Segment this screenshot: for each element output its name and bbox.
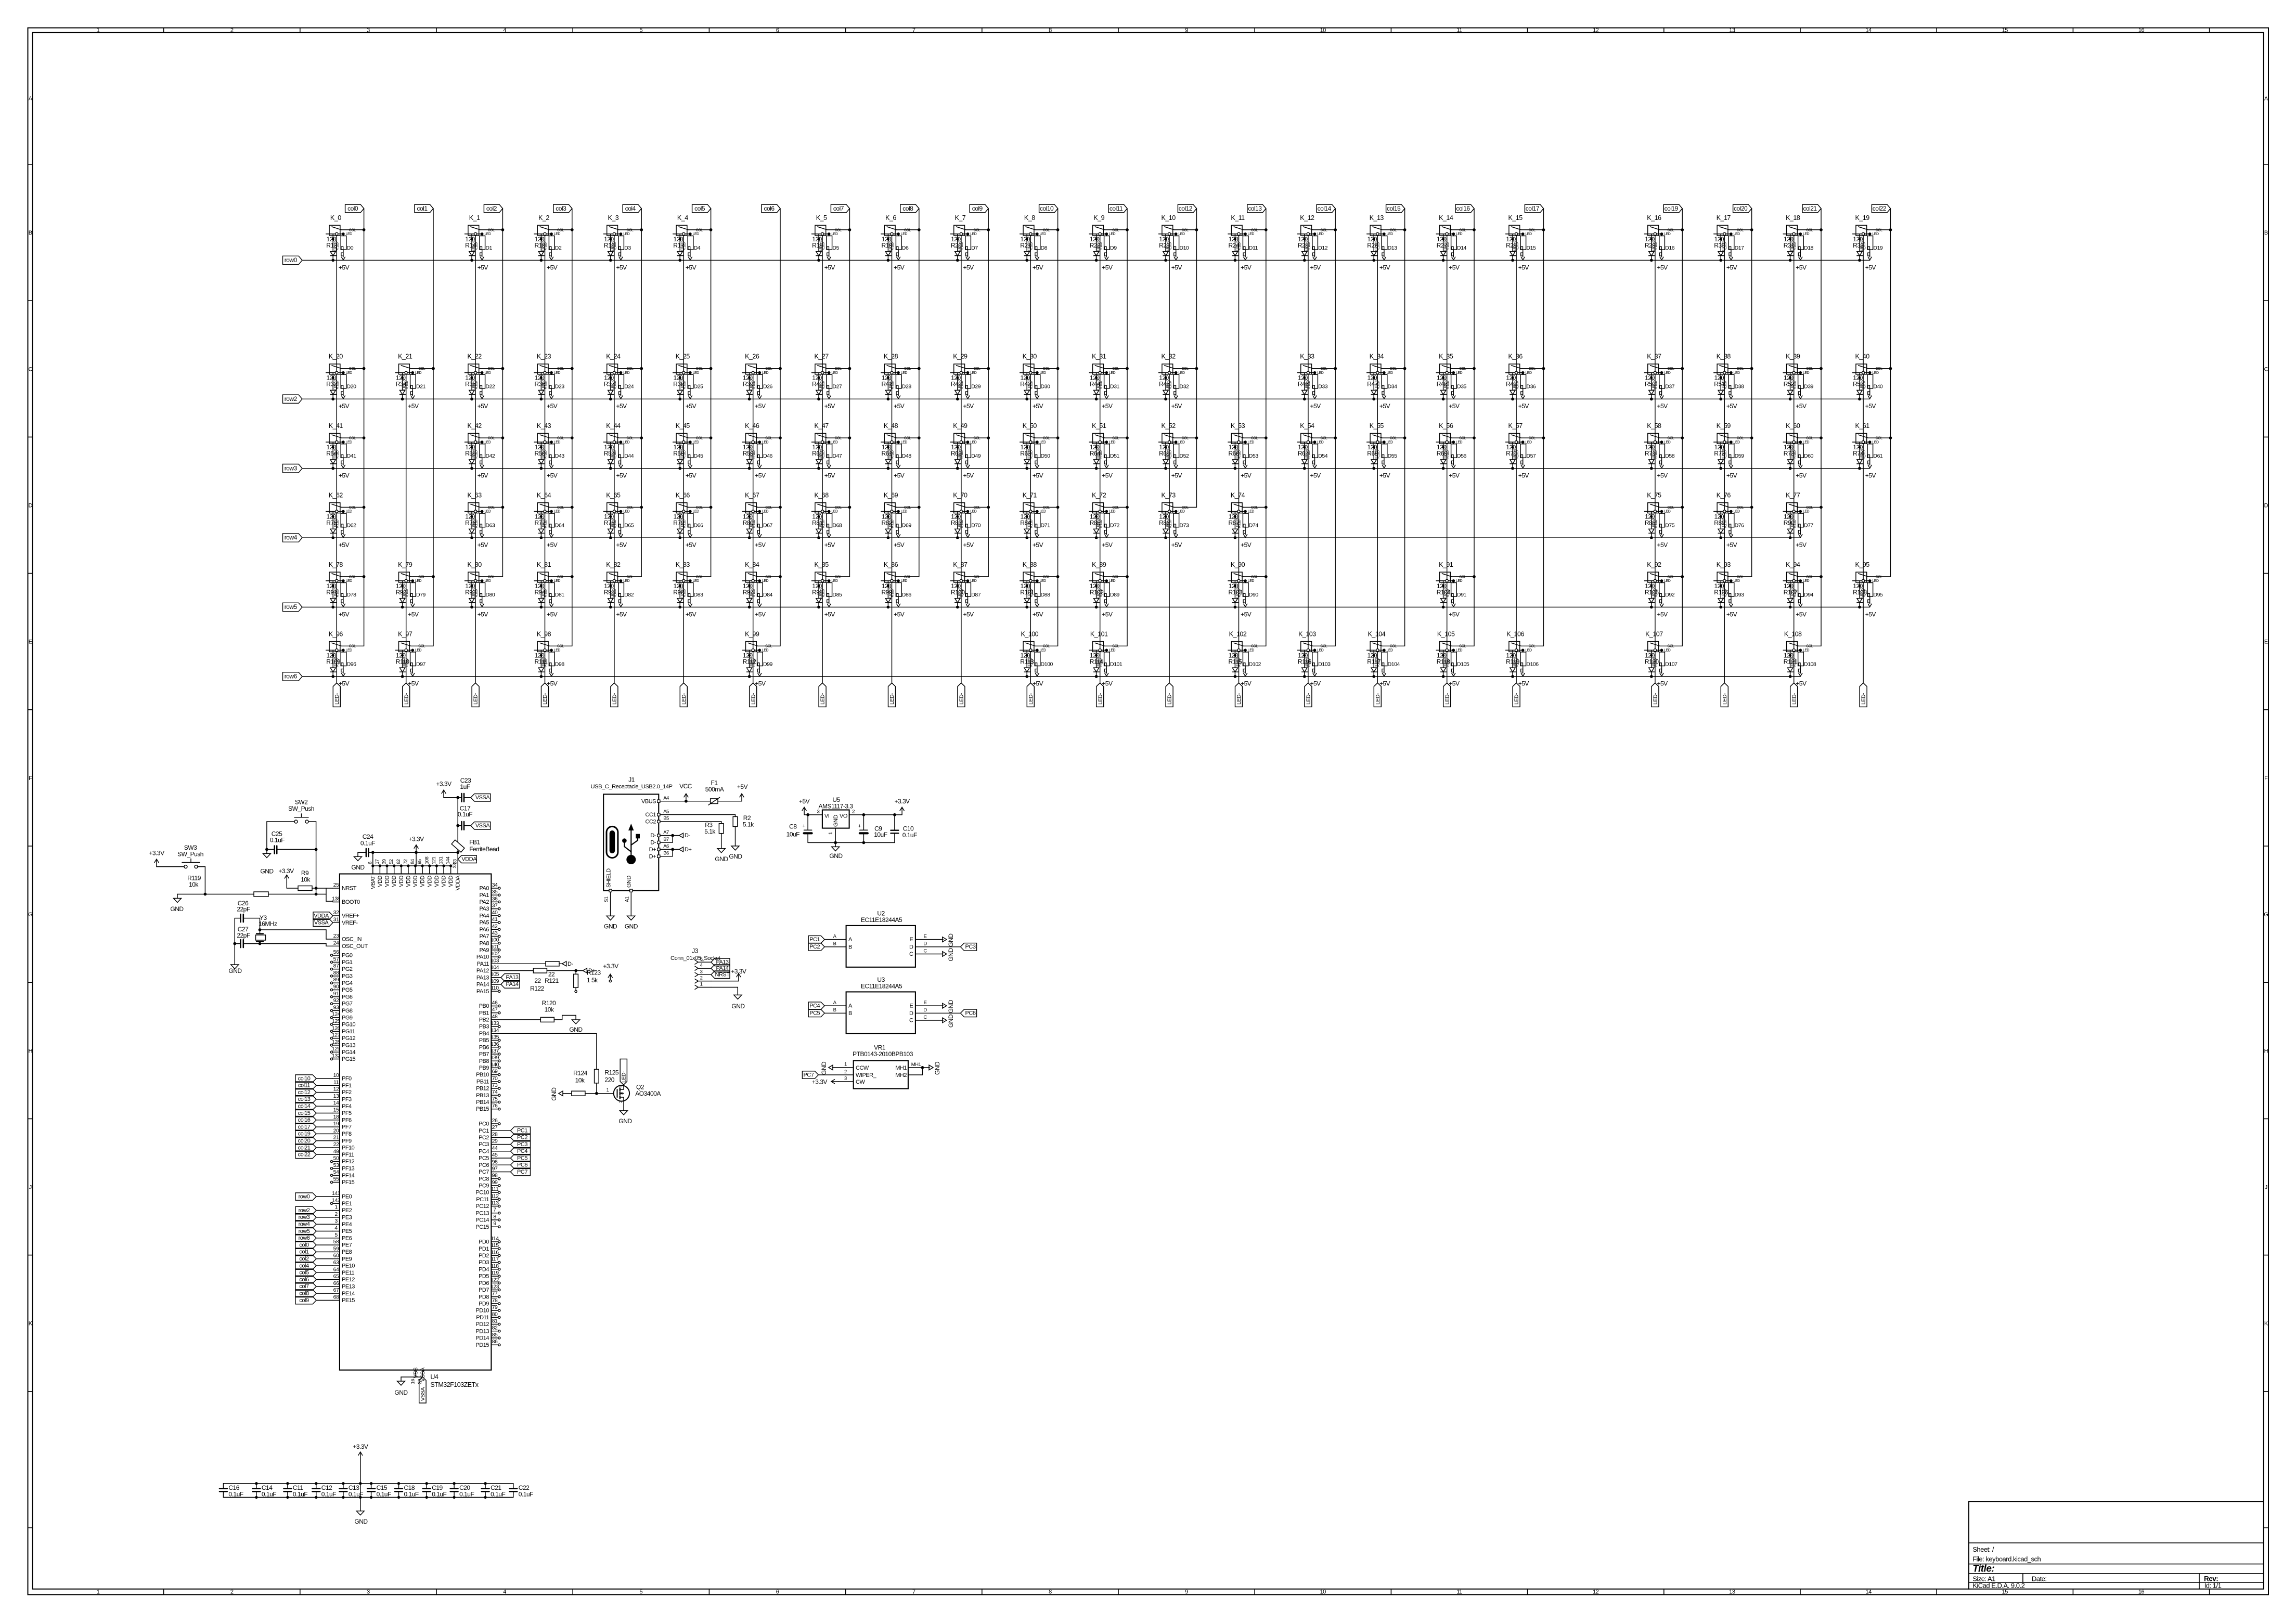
- svg-text:col12: col12: [298, 1089, 311, 1096]
- svg-text:GND: GND: [228, 967, 242, 975]
- svg-text:115: 115: [491, 1242, 499, 1249]
- svg-text:K_64: K_64: [537, 492, 551, 499]
- svg-text:K_55: K_55: [1370, 422, 1384, 430]
- svg-text:79: 79: [420, 592, 425, 598]
- svg-text:R111: R111: [535, 658, 548, 665]
- svg-text:4: 4: [700, 963, 703, 968]
- svg-text:15: 15: [333, 1107, 339, 1113]
- svg-text:27: 27: [836, 384, 842, 390]
- svg-text:PB12: PB12: [476, 1086, 489, 1092]
- svg-text:63: 63: [333, 1259, 339, 1266]
- svg-text:K_90: K_90: [1231, 561, 1245, 568]
- svg-text:K_66: K_66: [676, 492, 690, 499]
- svg-text:3: 3: [700, 969, 703, 975]
- svg-text:PC7: PC7: [479, 1169, 489, 1175]
- svg-text:13: 13: [1729, 27, 1735, 33]
- svg-text:R81: R81: [812, 519, 823, 527]
- svg-text:K_57: K_57: [1508, 422, 1523, 430]
- svg-text:52: 52: [389, 859, 394, 864]
- svg-text:PE1: PE1: [342, 1201, 352, 1207]
- svg-text:PD6: PD6: [479, 1280, 489, 1287]
- svg-text:GND: GND: [569, 1026, 583, 1033]
- svg-text:R29: R29: [1645, 242, 1656, 249]
- svg-text:PE7: PE7: [342, 1242, 352, 1249]
- svg-text:50: 50: [333, 1155, 339, 1162]
- svg-text:29: 29: [975, 384, 981, 390]
- svg-text:LED-: LED-: [750, 693, 756, 705]
- svg-text:0.1uF: 0.1uF: [360, 840, 375, 847]
- svg-text:+5V: +5V: [799, 798, 810, 805]
- svg-text:USB_C_Receptacle_USB2.0_14P: USB_C_Receptacle_USB2.0_14P: [591, 784, 673, 790]
- svg-text:R106: R106: [1714, 589, 1729, 596]
- svg-text:PG2: PG2: [342, 966, 353, 972]
- svg-text:141: 141: [332, 1190, 341, 1197]
- svg-text:R69: R69: [1437, 450, 1448, 457]
- svg-text:43: 43: [559, 453, 564, 459]
- svg-text:PF5: PF5: [342, 1110, 352, 1116]
- svg-text:K_16: K_16: [1647, 214, 1661, 222]
- svg-text:R23: R23: [1159, 242, 1170, 249]
- svg-text:6: 6: [906, 245, 909, 251]
- svg-text:27: 27: [492, 1124, 498, 1131]
- svg-text:54: 54: [333, 1169, 339, 1175]
- svg-text:64: 64: [333, 1266, 339, 1272]
- svg-text:PF11: PF11: [342, 1152, 354, 1158]
- svg-text:+3.3V: +3.3V: [894, 798, 910, 805]
- svg-text:R52: R52: [1784, 381, 1795, 388]
- svg-text:41: 41: [492, 916, 498, 923]
- svg-text:22pF: 22pF: [237, 932, 250, 939]
- svg-text:col21: col21: [1803, 205, 1817, 212]
- svg-text:row6: row6: [299, 1235, 310, 1241]
- svg-text:K_51: K_51: [1092, 422, 1106, 430]
- svg-text:4: 4: [334, 1225, 338, 1231]
- svg-text:col7: col7: [299, 1283, 309, 1290]
- svg-text:PC14: PC14: [475, 1217, 489, 1224]
- svg-text:14: 14: [1865, 1589, 1872, 1595]
- svg-text:21: 21: [420, 384, 425, 390]
- svg-text:PE10: PE10: [342, 1263, 355, 1269]
- svg-text:col11: col11: [298, 1083, 310, 1089]
- svg-text:K_106: K_106: [1506, 630, 1524, 638]
- svg-text:PA13: PA13: [506, 975, 518, 981]
- svg-text:4: 4: [503, 27, 506, 33]
- svg-text:78: 78: [351, 592, 356, 598]
- svg-text:R47: R47: [1367, 381, 1378, 388]
- svg-text:LED-: LED-: [889, 693, 895, 705]
- svg-text:VSSA: VSSA: [420, 1387, 426, 1401]
- svg-text:K_5: K_5: [816, 214, 827, 222]
- svg-text:LED-: LED-: [820, 693, 826, 705]
- svg-text:23: 23: [559, 384, 564, 390]
- svg-text:32: 32: [1183, 384, 1189, 390]
- svg-text:K_86: K_86: [884, 561, 898, 568]
- svg-text:69: 69: [492, 1069, 498, 1075]
- svg-text:+3.3V: +3.3V: [278, 867, 294, 875]
- svg-text:123: 123: [491, 1284, 499, 1290]
- svg-text:K_83: K_83: [676, 561, 690, 568]
- svg-text:99: 99: [767, 661, 772, 667]
- svg-text:GND: GND: [170, 905, 184, 913]
- svg-text:R13: R13: [326, 242, 337, 249]
- svg-text:136: 136: [491, 1041, 499, 1047]
- svg-text:33: 33: [452, 863, 458, 868]
- svg-text:PD13: PD13: [475, 1328, 489, 1334]
- svg-text:91: 91: [1461, 592, 1466, 598]
- svg-text:VBUS: VBUS: [641, 798, 656, 804]
- svg-text:row4: row4: [299, 1222, 310, 1228]
- svg-text:25: 25: [333, 882, 339, 888]
- svg-text:WIPER_: WIPER_: [856, 1072, 877, 1079]
- svg-text:R26: R26: [1367, 242, 1378, 249]
- svg-text:col20: col20: [1734, 205, 1748, 212]
- svg-text:GND: GND: [820, 1061, 828, 1075]
- svg-text:B: B: [29, 230, 32, 236]
- svg-text:12: 12: [1322, 245, 1327, 251]
- svg-text:R88: R88: [1645, 519, 1656, 527]
- svg-text:PE6: PE6: [342, 1235, 352, 1241]
- svg-text:A7: A7: [663, 829, 669, 835]
- svg-text:R15: R15: [535, 242, 546, 249]
- svg-text:58: 58: [333, 1239, 339, 1245]
- svg-text:VO: VO: [840, 813, 848, 820]
- svg-text:35: 35: [492, 889, 498, 895]
- svg-text:PA0: PA0: [480, 886, 489, 892]
- svg-text:LED-: LED-: [959, 693, 965, 705]
- svg-text:34: 34: [1391, 384, 1397, 390]
- svg-text:0.1uF: 0.1uF: [491, 1491, 505, 1498]
- svg-text:col14: col14: [1318, 205, 1332, 212]
- svg-text:LED-: LED-: [403, 693, 409, 705]
- svg-text:K_104: K_104: [1368, 630, 1385, 638]
- svg-text:R102: R102: [1090, 589, 1104, 596]
- svg-text:PC9: PC9: [479, 1183, 489, 1189]
- svg-text:R43: R43: [1020, 381, 1031, 388]
- svg-text:67: 67: [767, 523, 772, 529]
- svg-text:PF6: PF6: [342, 1117, 352, 1123]
- svg-text:SW_Push: SW_Push: [177, 851, 203, 858]
- svg-text:87: 87: [975, 592, 981, 598]
- svg-text:K_24: K_24: [606, 353, 621, 360]
- svg-text:R57: R57: [604, 450, 615, 457]
- svg-text:PA1: PA1: [480, 892, 489, 899]
- svg-text:K_47: K_47: [814, 422, 829, 430]
- svg-text:103: 103: [491, 957, 499, 964]
- svg-text:135: 135: [491, 1034, 499, 1041]
- svg-text:K_98: K_98: [537, 630, 551, 638]
- svg-text:3: 3: [367, 27, 370, 33]
- svg-text:32: 32: [333, 910, 339, 916]
- svg-text:K_105: K_105: [1437, 630, 1455, 638]
- svg-text:1uF: 1uF: [460, 783, 470, 790]
- svg-text:PC2: PC2: [809, 944, 820, 950]
- svg-text:PD3: PD3: [479, 1259, 489, 1266]
- svg-text:K_27: K_27: [814, 353, 829, 360]
- svg-text:K_8: K_8: [1024, 214, 1035, 222]
- svg-text:10: 10: [1320, 1589, 1326, 1595]
- svg-text:K_36: K_36: [1508, 353, 1523, 360]
- svg-text:R101: R101: [1020, 589, 1035, 596]
- svg-text:LED-: LED-: [1375, 693, 1381, 705]
- svg-text:PF7: PF7: [342, 1124, 352, 1131]
- svg-text:70: 70: [975, 523, 981, 529]
- svg-text:73: 73: [492, 1082, 498, 1088]
- svg-text:col16: col16: [298, 1117, 311, 1123]
- svg-text:R73: R73: [1784, 450, 1795, 457]
- svg-text:22: 22: [534, 977, 541, 984]
- svg-text:49: 49: [975, 453, 981, 459]
- svg-text:col7: col7: [833, 205, 844, 212]
- svg-text:+3.3V: +3.3V: [436, 781, 452, 788]
- svg-text:MH2: MH2: [895, 1072, 907, 1079]
- svg-text:PC11: PC11: [476, 1197, 489, 1203]
- svg-text:55: 55: [333, 1176, 339, 1183]
- svg-text:33: 33: [1322, 384, 1327, 390]
- svg-text:K_9: K_9: [1093, 214, 1104, 222]
- svg-text:PA15: PA15: [476, 989, 489, 995]
- svg-text:R84: R84: [1020, 519, 1031, 527]
- svg-text:K_84: K_84: [745, 561, 759, 568]
- svg-text:PF1: PF1: [342, 1083, 352, 1089]
- svg-text:76: 76: [492, 1103, 498, 1109]
- svg-text:PE0: PE0: [342, 1194, 352, 1200]
- svg-text:col5: col5: [299, 1270, 309, 1276]
- svg-text:R78: R78: [604, 519, 615, 527]
- svg-text:MH1: MH1: [911, 1062, 921, 1068]
- svg-text:K_54: K_54: [1300, 422, 1314, 430]
- svg-text:0.1uF: 0.1uF: [321, 1491, 336, 1498]
- svg-text:102: 102: [1253, 661, 1261, 667]
- svg-text:70: 70: [492, 1075, 498, 1082]
- svg-text:VDD: VDD: [427, 875, 433, 887]
- svg-text:GND: GND: [934, 1061, 941, 1075]
- svg-text:K_30: K_30: [1023, 353, 1037, 360]
- svg-text:col4: col4: [625, 205, 636, 212]
- svg-text:11: 11: [1456, 27, 1462, 33]
- svg-text:144: 144: [445, 856, 451, 864]
- svg-text:48: 48: [492, 1014, 498, 1020]
- svg-text:LED-: LED-: [1236, 693, 1242, 705]
- svg-text:B: B: [848, 1010, 852, 1017]
- svg-text:J: J: [2265, 1185, 2267, 1191]
- svg-text:31: 31: [333, 916, 339, 923]
- svg-text:PC4: PC4: [809, 1003, 820, 1009]
- svg-text:PE8: PE8: [342, 1249, 352, 1255]
- svg-text:68: 68: [836, 523, 842, 529]
- svg-text:R80: R80: [743, 519, 754, 527]
- svg-text:GND: GND: [729, 853, 742, 860]
- svg-text:VDD: VDD: [420, 875, 426, 887]
- svg-text:col6: col6: [299, 1277, 309, 1283]
- svg-text:PTB0143-2010BPB103: PTB0143-2010BPB103: [853, 1050, 913, 1058]
- svg-text:VSSA: VSSA: [475, 795, 491, 801]
- svg-text:PC5: PC5: [809, 1010, 820, 1017]
- svg-text:R41: R41: [882, 381, 893, 388]
- svg-text:R64: R64: [1090, 450, 1101, 457]
- svg-text:43: 43: [492, 930, 498, 937]
- svg-text:4: 4: [698, 245, 701, 251]
- svg-text:R79: R79: [673, 519, 684, 527]
- svg-text:52: 52: [1183, 453, 1189, 459]
- svg-text:R71: R71: [1645, 450, 1656, 457]
- svg-text:K_0: K_0: [330, 214, 341, 222]
- svg-text:K_101: K_101: [1090, 630, 1108, 638]
- svg-text:K_52: K_52: [1161, 422, 1176, 430]
- svg-text:PB5: PB5: [479, 1037, 489, 1044]
- svg-text:PD10: PD10: [475, 1308, 489, 1314]
- svg-text:A: A: [2264, 96, 2268, 102]
- svg-text:col15: col15: [298, 1110, 311, 1116]
- svg-text:VCC: VCC: [679, 783, 692, 790]
- svg-text:PG6: PG6: [342, 994, 353, 1000]
- svg-text:PF0: PF0: [342, 1076, 352, 1082]
- svg-text:J: J: [29, 1185, 32, 1191]
- svg-text:1: 1: [97, 27, 100, 33]
- svg-text:LED-: LED-: [1722, 693, 1728, 705]
- svg-text:PD9: PD9: [479, 1301, 489, 1307]
- svg-text:K_29: K_29: [953, 353, 968, 360]
- svg-text:K_37: K_37: [1647, 353, 1661, 360]
- svg-text:PB14: PB14: [476, 1099, 489, 1106]
- svg-text:28: 28: [906, 384, 911, 390]
- svg-text:93: 93: [333, 1004, 339, 1010]
- svg-text:K_73: K_73: [1161, 492, 1176, 499]
- svg-text:R87: R87: [1229, 519, 1240, 527]
- svg-text:col2: col2: [486, 205, 497, 212]
- svg-text:AO3400A: AO3400A: [635, 1090, 661, 1097]
- svg-text:GND: GND: [833, 815, 839, 827]
- svg-text:K_59: K_59: [1717, 422, 1731, 430]
- svg-text:PG14: PG14: [342, 1049, 356, 1056]
- svg-text:R66: R66: [1229, 450, 1240, 457]
- svg-text:VDD: VDD: [412, 875, 419, 887]
- svg-text:14: 14: [1461, 245, 1466, 251]
- svg-text:FerriteBead: FerriteBead: [469, 846, 499, 853]
- svg-text:OSC_OUT: OSC_OUT: [342, 943, 368, 950]
- svg-text:K_93: K_93: [1717, 561, 1731, 568]
- svg-text:PA8: PA8: [480, 940, 489, 946]
- svg-text:94: 94: [1808, 592, 1813, 598]
- svg-text:col5: col5: [694, 205, 705, 212]
- svg-text:R121: R121: [545, 977, 559, 984]
- svg-text:PB3: PB3: [479, 1024, 489, 1030]
- svg-text:K_26: K_26: [745, 353, 759, 360]
- svg-text:R90: R90: [1784, 519, 1795, 527]
- svg-text:K_100: K_100: [1021, 630, 1038, 638]
- svg-text:R45: R45: [1159, 381, 1170, 388]
- svg-text:131: 131: [438, 856, 444, 864]
- svg-text:R77: R77: [535, 519, 546, 527]
- svg-text:R22: R22: [1090, 242, 1101, 249]
- svg-text:72: 72: [403, 859, 408, 864]
- svg-text:42: 42: [492, 923, 498, 929]
- svg-text:57: 57: [333, 956, 339, 962]
- svg-text:1: 1: [334, 1204, 338, 1211]
- svg-text:500mA: 500mA: [705, 786, 724, 793]
- svg-text:96: 96: [351, 661, 356, 667]
- svg-text:0.1uF: 0.1uF: [270, 837, 285, 844]
- svg-text:R91: R91: [326, 589, 337, 596]
- svg-text:col19: col19: [298, 1131, 311, 1137]
- svg-text:D: D: [28, 503, 32, 509]
- svg-text:K_75: K_75: [1647, 492, 1661, 499]
- svg-text:R34: R34: [396, 381, 407, 388]
- svg-text:+3.3V: +3.3V: [149, 850, 164, 857]
- svg-text:105: 105: [491, 971, 499, 978]
- svg-text:LED-: LED-: [1097, 693, 1103, 705]
- svg-text:K_68: K_68: [814, 492, 829, 499]
- svg-text:VDD: VDD: [391, 875, 397, 887]
- svg-text:K_19: K_19: [1855, 214, 1869, 222]
- svg-text:129: 129: [332, 1046, 341, 1052]
- svg-text:S1: S1: [604, 897, 610, 902]
- svg-text:19: 19: [1877, 245, 1883, 251]
- svg-text:col4: col4: [299, 1263, 309, 1269]
- svg-text:74: 74: [492, 1089, 498, 1095]
- svg-text:PB15: PB15: [476, 1106, 489, 1112]
- svg-text:col21: col21: [298, 1145, 311, 1151]
- svg-text:K_28: K_28: [884, 353, 898, 360]
- svg-text:K_40: K_40: [1855, 353, 1869, 360]
- svg-text:K_45: K_45: [676, 422, 690, 430]
- svg-text:+: +: [802, 823, 805, 829]
- svg-text:2: 2: [852, 809, 855, 815]
- svg-text:col2: col2: [299, 1256, 309, 1262]
- svg-text:GND: GND: [625, 923, 638, 930]
- svg-text:90: 90: [1253, 592, 1258, 598]
- svg-text:7: 7: [493, 1207, 496, 1213]
- svg-text:PA10: PA10: [476, 954, 489, 960]
- svg-text:col0: col0: [347, 205, 358, 212]
- svg-text:56: 56: [333, 949, 339, 955]
- svg-text:K_17: K_17: [1717, 214, 1731, 222]
- svg-text:+3.3V: +3.3V: [353, 1443, 368, 1450]
- svg-text:67: 67: [333, 1287, 339, 1293]
- svg-text:D: D: [909, 944, 913, 950]
- svg-text:127: 127: [332, 1032, 341, 1038]
- svg-text:R97: R97: [743, 589, 754, 596]
- svg-text:col22: col22: [1873, 205, 1887, 212]
- svg-text:PF9: PF9: [342, 1138, 352, 1144]
- svg-text:31: 31: [1114, 384, 1119, 390]
- svg-text:MH1: MH1: [895, 1065, 907, 1071]
- svg-text:F: F: [29, 775, 32, 782]
- svg-text:K_80: K_80: [467, 561, 482, 568]
- svg-text:PG0: PG0: [342, 953, 353, 959]
- svg-text:PA12: PA12: [476, 968, 489, 974]
- svg-text:25: 25: [698, 384, 703, 390]
- svg-text:137: 137: [491, 1048, 499, 1054]
- svg-text:1: 1: [828, 832, 834, 835]
- svg-text:R37: R37: [604, 381, 615, 388]
- svg-text:FB1: FB1: [469, 839, 480, 846]
- svg-text:K_69: K_69: [884, 492, 898, 499]
- svg-text:PA5: PA5: [480, 920, 489, 926]
- svg-text:54: 54: [1322, 453, 1327, 459]
- svg-text:R119: R119: [1506, 658, 1520, 665]
- svg-text:PC0: PC0: [479, 1121, 489, 1127]
- svg-text:D-: D-: [650, 833, 656, 839]
- svg-text:R113: R113: [1020, 658, 1034, 665]
- svg-text:102: 102: [491, 951, 499, 957]
- svg-text:PF13: PF13: [342, 1166, 355, 1172]
- svg-text:LED-: LED-: [621, 1071, 627, 1083]
- svg-text:col17: col17: [298, 1124, 311, 1130]
- svg-text:VDDA: VDDA: [455, 875, 461, 891]
- svg-text:R83: R83: [951, 519, 962, 527]
- svg-text:LED-: LED-: [1653, 693, 1659, 705]
- svg-text:R121: R121: [1784, 658, 1798, 665]
